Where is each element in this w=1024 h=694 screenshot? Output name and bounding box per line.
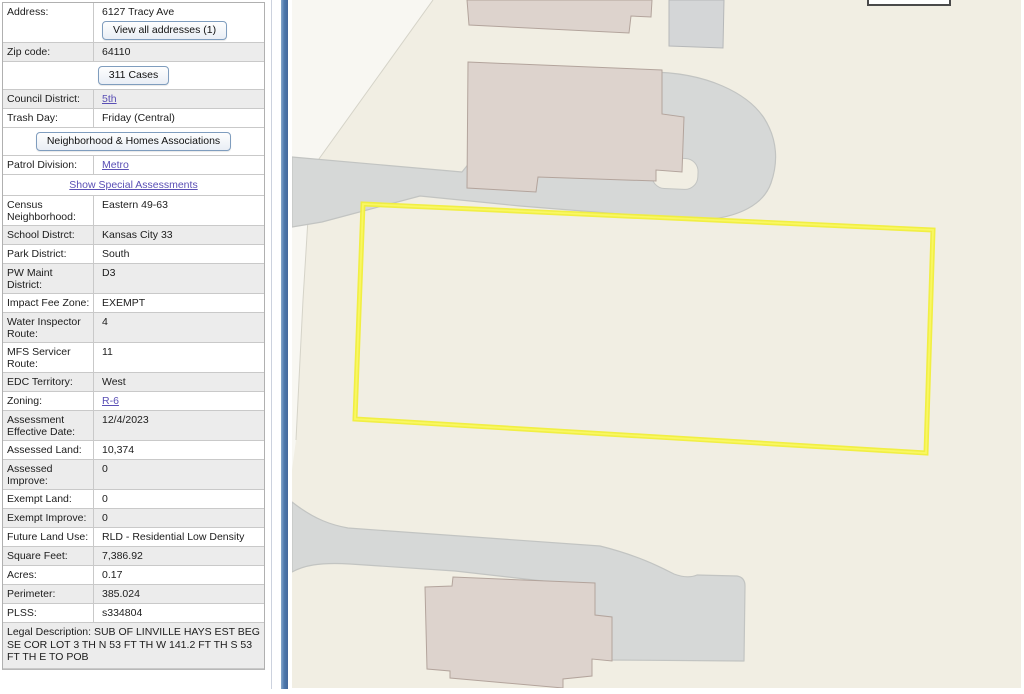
row-mfs-servicer-route: MFS Servicer Route:11 — [3, 343, 264, 373]
row-edc-territory: EDC Territory:West — [3, 373, 264, 392]
field-label: Water Inspector Route: — [3, 313, 94, 342]
row-square-feet: Square Feet:7,386.92 — [3, 547, 264, 566]
field-value-text: 64110 — [102, 46, 130, 58]
field-label: Trash Day: — [3, 109, 94, 127]
row-zoning: Zoning:R-6 — [3, 392, 264, 411]
field-label: Square Feet: — [3, 547, 94, 565]
field-value: Friday (Central) — [94, 109, 264, 127]
council-district-link[interactable]: 5th — [102, 93, 117, 105]
field-value: 10,374 — [94, 441, 264, 459]
field-value: 6127 Tracy AveView all addresses (1) — [94, 3, 264, 42]
field-label: Patrol Division: — [3, 156, 94, 174]
parcel-info-panel: Address:6127 Tracy AveView all addresses… — [0, 0, 272, 689]
field-value: D3 — [94, 264, 264, 293]
row-neighborhood-homes-associations: Neighborhood & Homes Associations — [3, 128, 264, 156]
row-future-land-use: Future Land Use:RLD - Residential Low De… — [3, 528, 264, 547]
field-value: RLD - Residential Low Density — [94, 528, 264, 546]
field-value-text: West — [102, 376, 126, 388]
row-assessed-improve: Assessed Improve:0 — [3, 460, 264, 490]
building-footprint-main — [467, 62, 684, 192]
legal-description-text: Legal Description: SUB OF LINVILLE HAYS … — [7, 626, 260, 663]
field-value-text: Friday (Central) — [102, 112, 175, 124]
row-water-inspector-route: Water Inspector Route:4 — [3, 313, 264, 343]
row-assessment-effective-date: Assessment Effective Date:12/4/2023 — [3, 411, 264, 441]
field-value-text: 11 — [102, 346, 113, 358]
field-value: R-6 — [94, 392, 264, 410]
field-value: 385.024 — [94, 585, 264, 603]
row-census-neighborhood: Census Neighborhood:Eastern 49-63 — [3, 196, 264, 226]
field-label: Assessment Effective Date: — [3, 411, 94, 440]
row-311-cases: 311 Cases — [3, 62, 264, 90]
field-value-text: 4 — [102, 316, 108, 328]
field-value: s334804 — [94, 604, 264, 622]
panel-border — [271, 0, 272, 689]
row-plss: PLSS:s334804 — [3, 604, 264, 623]
field-value-text: EXEMPT — [102, 297, 145, 309]
neighborhood-homes-associations-button[interactable]: Neighborhood & Homes Associations — [36, 132, 231, 151]
field-label: Zip code: — [3, 43, 94, 61]
field-value-text: 0 — [102, 463, 108, 475]
field-label: Perimeter: — [3, 585, 94, 603]
field-value-text: s334804 — [102, 607, 142, 619]
field-value: 0 — [94, 509, 264, 527]
field-value-text: Kansas City 33 — [102, 229, 173, 241]
parcel-map[interactable] — [292, 0, 1021, 688]
row-patrol-division: Patrol Division:Metro — [3, 156, 264, 175]
field-label: Council District: — [3, 90, 94, 108]
map-canvas[interactable] — [292, 0, 1021, 688]
map-label-box — [868, 0, 950, 5]
field-value: 11 — [94, 343, 264, 372]
field-value-text: 12/4/2023 — [102, 414, 149, 426]
row-impact-fee-zone: Impact Fee Zone:EXEMPT — [3, 294, 264, 313]
field-value-text: 385.024 — [102, 588, 140, 600]
field-label: PW Maint District: — [3, 264, 94, 293]
row-acres: Acres:0.17 — [3, 566, 264, 585]
row-perimeter: Perimeter:385.024 — [3, 585, 264, 604]
field-value: South — [94, 245, 264, 263]
row-address: Address:6127 Tracy AveView all addresses… — [3, 3, 264, 43]
field-value: 64110 — [94, 43, 264, 61]
row-park-district: Park District:South — [3, 245, 264, 264]
field-value: 5th — [94, 90, 264, 108]
row-council-district: Council District:5th — [3, 90, 264, 109]
field-value: 12/4/2023 — [94, 411, 264, 440]
show-special-assessments-link[interactable]: Show Special Assessments — [69, 179, 197, 191]
building-footprint-bottom — [425, 577, 612, 688]
field-label: Exempt Land: — [3, 490, 94, 508]
field-label: School Distrct: — [3, 226, 94, 244]
row-legal-description: Legal Description: SUB OF LINVILLE HAYS … — [3, 623, 264, 669]
field-value: 0.17 — [94, 566, 264, 584]
field-value-text: 0.17 — [102, 569, 122, 581]
row-zip-code: Zip code:64110 — [3, 43, 264, 62]
field-value: Kansas City 33 — [94, 226, 264, 244]
field-label: Census Neighborhood: — [3, 196, 94, 225]
row-school-distrct: School Distrct:Kansas City 33 — [3, 226, 264, 245]
field-value: EXEMPT — [94, 294, 264, 312]
field-label: Acres: — [3, 566, 94, 584]
field-label: Exempt Improve: — [3, 509, 94, 527]
view-all-addresses-1-button[interactable]: View all addresses (1) — [102, 21, 227, 40]
field-label: Assessed Improve: — [3, 460, 94, 489]
field-label: Future Land Use: — [3, 528, 94, 546]
field-label: EDC Territory: — [3, 373, 94, 391]
field-label: Park District: — [3, 245, 94, 263]
field-value: Eastern 49-63 — [94, 196, 264, 225]
row-exempt-improve: Exempt Improve:0 — [3, 509, 264, 528]
field-value: 4 — [94, 313, 264, 342]
field-label: PLSS: — [3, 604, 94, 622]
field-value: Metro — [94, 156, 264, 174]
row-exempt-land: Exempt Land:0 — [3, 490, 264, 509]
field-value-text: 6127 Tracy Ave — [102, 6, 174, 18]
row-assessed-land: Assessed Land:10,374 — [3, 441, 264, 460]
field-value-text: 10,374 — [102, 444, 134, 456]
field-value-text: Eastern 49-63 — [102, 199, 168, 211]
field-value-text: 0 — [102, 493, 108, 505]
field-value: West — [94, 373, 264, 391]
parcel-attributes-table: Address:6127 Tracy AveView all addresses… — [2, 2, 265, 670]
panel-map-splitter-scrollbar[interactable] — [281, 0, 288, 689]
field-value-text: South — [102, 248, 129, 260]
field-label: MFS Servicer Route: — [3, 343, 94, 372]
zoning-link[interactable]: R-6 — [102, 395, 119, 407]
field-value: 0 — [94, 490, 264, 508]
row-pw-maint-district: PW Maint District:D3 — [3, 264, 264, 294]
building-footprint-gray — [669, 0, 724, 48]
field-value-text: D3 — [102, 267, 115, 279]
field-value: 0 — [94, 460, 264, 489]
patrol-division-link[interactable]: Metro — [102, 159, 129, 171]
field-label: Zoning: — [3, 392, 94, 410]
311-cases-button[interactable]: 311 Cases — [98, 66, 169, 85]
field-label: Impact Fee Zone: — [3, 294, 94, 312]
field-value-text: 7,386.92 — [102, 550, 143, 562]
field-label: Address: — [3, 3, 94, 42]
field-label: Assessed Land: — [3, 441, 94, 459]
field-value-text: 0 — [102, 512, 108, 524]
field-value: 7,386.92 — [94, 547, 264, 565]
field-value-text: RLD - Residential Low Density — [102, 531, 244, 543]
row-trash-day: Trash Day:Friday (Central) — [3, 109, 264, 128]
row-show-special-assessments: Show Special Assessments — [3, 175, 264, 196]
